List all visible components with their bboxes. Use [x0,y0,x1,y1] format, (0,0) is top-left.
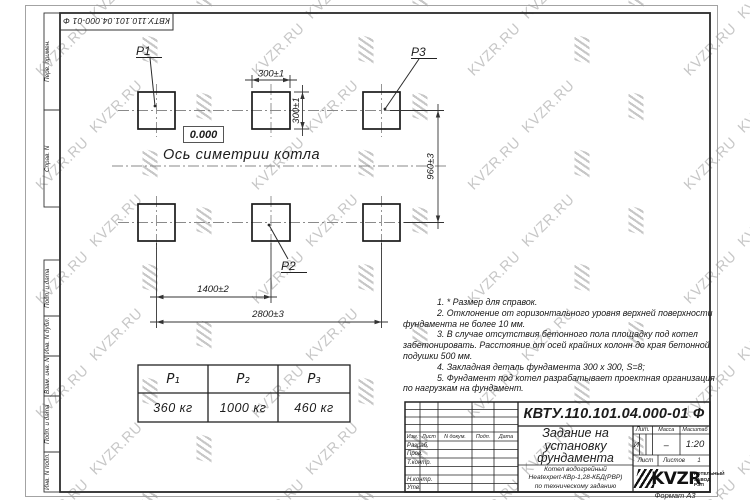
margin-label-perv-primen: Перв. примен. [44,13,60,110]
margin-label-podp-data-1: Подп. и дата [44,260,60,316]
tb-row-utv: Утв. [407,485,421,491]
note-line: 5. Фундамент под котел разрабатывает про… [403,373,711,384]
drawing-sheet: KVZR.RUKVZR.RUKVZR.RUKVZR.RUKVZR.RUKVZR.… [0,0,750,500]
dim-outer-column-spacing: 2800±3 [150,243,388,328]
loads-table-header-p3: P₃ [278,365,350,393]
tb-col-list: Лист [420,432,438,441]
note-line: по нагрузкам на фундамент. [403,383,711,394]
boiler-symmetry-axis-label: Ось симетрии котла [163,147,320,163]
svg-text:300±1: 300±1 [291,97,302,123]
svg-text:2800±3: 2800±3 [251,309,284,320]
tb-title-line: фундамента [518,452,633,465]
note-line: 1. * Размер для справок. [403,297,711,308]
top-stamp-doc-number: КВТУ.110.101.04.000-01 Ф [60,13,173,30]
tb-product-line: Heatexpert-КВр-1,28-КБД(РВР) [518,474,633,482]
note-line: 2. Отклонение от горизонтального уровня … [403,308,711,319]
format-label: Формат А3 [640,491,710,500]
dim-pad-height: 300±1 [291,85,309,136]
tb-lit-value: И [633,434,640,455]
note-line: 3. В случае отсутствия бетонного пола пл… [403,329,711,340]
tb-doc-number: КВТУ.110.101.04.000-01 Ф [520,402,708,426]
loads-table-header-p2: P₂ [208,365,278,393]
tb-scale-value: 1:20 [680,434,710,455]
margin-label-sprav-n: Справ. N [44,110,60,207]
kvzr-tagline: КОТЕЛЬНЫЙ ЗАВОД РЭП [694,471,714,488]
tb-row-razrab: Разраб. [407,443,429,449]
tb-row-tkontr: Т.контр. [407,460,431,466]
margin-label-vzam-inv: Взам. инв. N [44,356,60,396]
note-line: забетонировать. Расстояние от осей крайн… [403,340,711,351]
tb-title: Задание на установку фундамента [518,427,633,465]
tb-sheets-label: Листов [658,455,690,466]
technical-notes: 1. * Размер для справок. 2. Отклонение о… [403,297,711,394]
pad-label-p3: P3 [411,45,437,59]
margin-label-inv-dubl: Инв. N дубл. [44,316,60,356]
note-line: 4. Закладная деталь фундамента 300 х 300… [403,362,711,373]
tb-row-prov: Пров. [407,451,423,457]
kvzr-tagline-line: ЗАВОД РЭП [694,477,714,488]
svg-text:300±1: 300±1 [258,69,284,80]
tb-col-data: Дата [494,432,518,441]
note-line: подушки 500 мм. [403,351,711,362]
loads-table-value-p1: 360 кг [138,393,208,422]
dim-row-spacing: 960±3 [390,104,444,229]
tb-mass-label: Масса [653,426,681,434]
tb-sheet-label: Лист [633,455,658,466]
tb-col-podp: Подп. [472,432,494,441]
center-lines [112,84,448,249]
loads-table-value-p2: 1000 кг [208,393,278,422]
tb-scale-label: Масштаб [680,426,710,434]
kvzr-tagline-line: КОТЕЛЬНЫЙ [694,471,714,477]
foundation-pads [138,92,400,241]
tb-product-line: Котел водогрейный [518,466,633,474]
tb-col-izm: Изм. [405,432,420,441]
tb-sheets-value: 1 [690,455,708,466]
tb-product: Котел водогрейный Heatexpert-КВр-1,28-КБ… [518,466,633,491]
margin-label-inv-podl: Инв. N подл. [44,452,60,492]
kvzr-logo-text: KVZR [655,466,697,492]
tb-row-nkontr: Н.контр. [407,477,432,483]
tb-mass-value: – [653,434,681,455]
tb-title-line: Задание на [518,427,633,440]
svg-text:960±3: 960±3 [426,153,437,180]
loads-table-value-p3: 460 кг [278,393,350,422]
svg-text:1400±2: 1400±2 [197,284,229,295]
margin-label-podp-data-2: Подп. и дата [44,396,60,452]
pad-label-p1: P1 [136,44,162,58]
tb-product-line: по техническому заданию [518,483,633,491]
loads-table-header-p1: P₁ [138,365,208,393]
elevation-mark: 0.000 [183,126,224,143]
pad-label-p2: P2 [281,259,307,273]
tb-lit-label: Лит. [633,426,653,434]
note-line: фундамента не более 10 мм. [403,319,711,330]
tb-col-ndoc: N докум. [438,432,472,441]
dim-mid-column-spacing: 1400±2 [150,243,277,303]
